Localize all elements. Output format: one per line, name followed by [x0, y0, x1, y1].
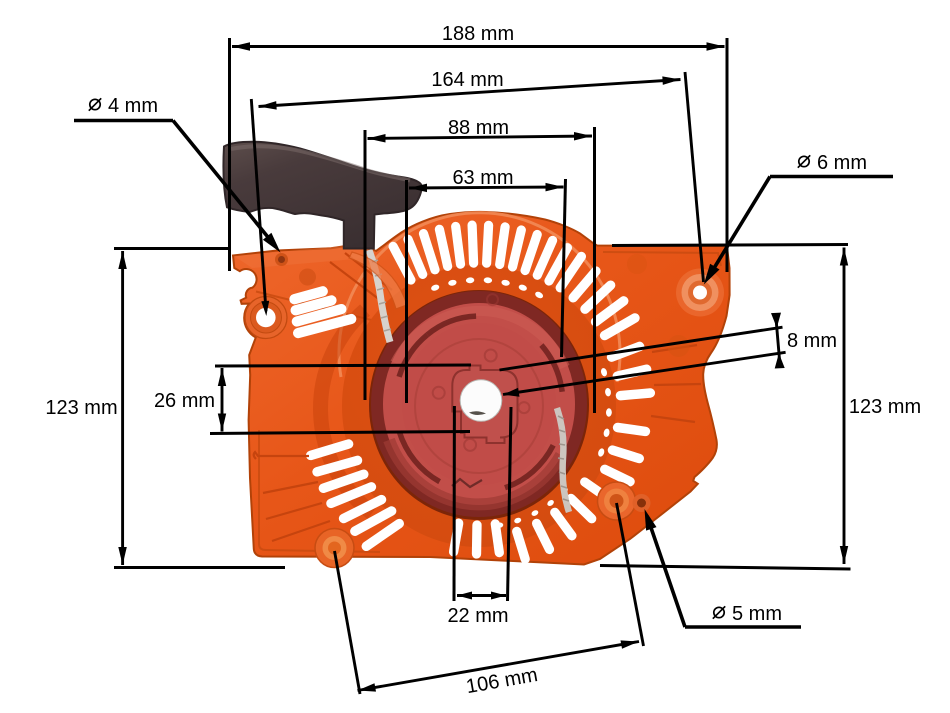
svg-text:123 mm: 123 mm — [849, 396, 921, 418]
svg-text:22 mm: 22 mm — [447, 605, 508, 627]
svg-text:6 mm: 6 mm — [817, 152, 867, 174]
svg-text:8 mm: 8 mm — [787, 330, 837, 352]
svg-text:4 mm: 4 mm — [108, 95, 158, 117]
svg-text:164 mm: 164 mm — [431, 69, 503, 91]
svg-text:188 mm: 188 mm — [442, 23, 514, 45]
svg-text:5 mm: 5 mm — [732, 603, 782, 625]
svg-text:123 mm: 123 mm — [45, 397, 117, 419]
svg-text:88 mm: 88 mm — [448, 117, 509, 139]
svg-text:63 mm: 63 mm — [452, 167, 513, 189]
svg-text:26 mm: 26 mm — [154, 390, 215, 412]
